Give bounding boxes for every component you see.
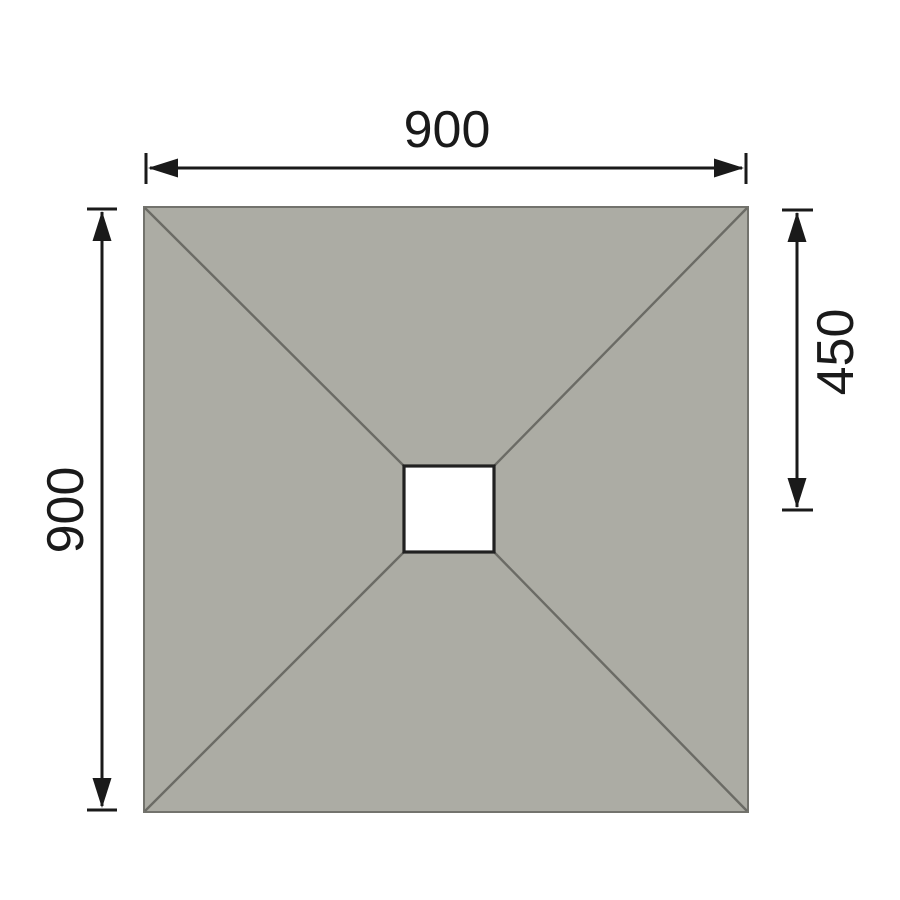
drain-outlet — [404, 466, 494, 552]
arrow-right-icon — [714, 159, 744, 178]
height-dimension-label: 900 — [40, 467, 92, 554]
arrow-up-icon — [788, 212, 807, 242]
arrow-down-icon — [788, 478, 807, 508]
arrow-left-icon — [148, 159, 178, 178]
drain-offset-dimension-label: 450 — [810, 309, 862, 396]
arrow-up-icon — [93, 211, 112, 241]
arrow-down-icon — [93, 778, 112, 808]
shower-tray-diagram: 900 900 450 — [0, 0, 900, 900]
width-dimension-label: 900 — [404, 104, 491, 156]
